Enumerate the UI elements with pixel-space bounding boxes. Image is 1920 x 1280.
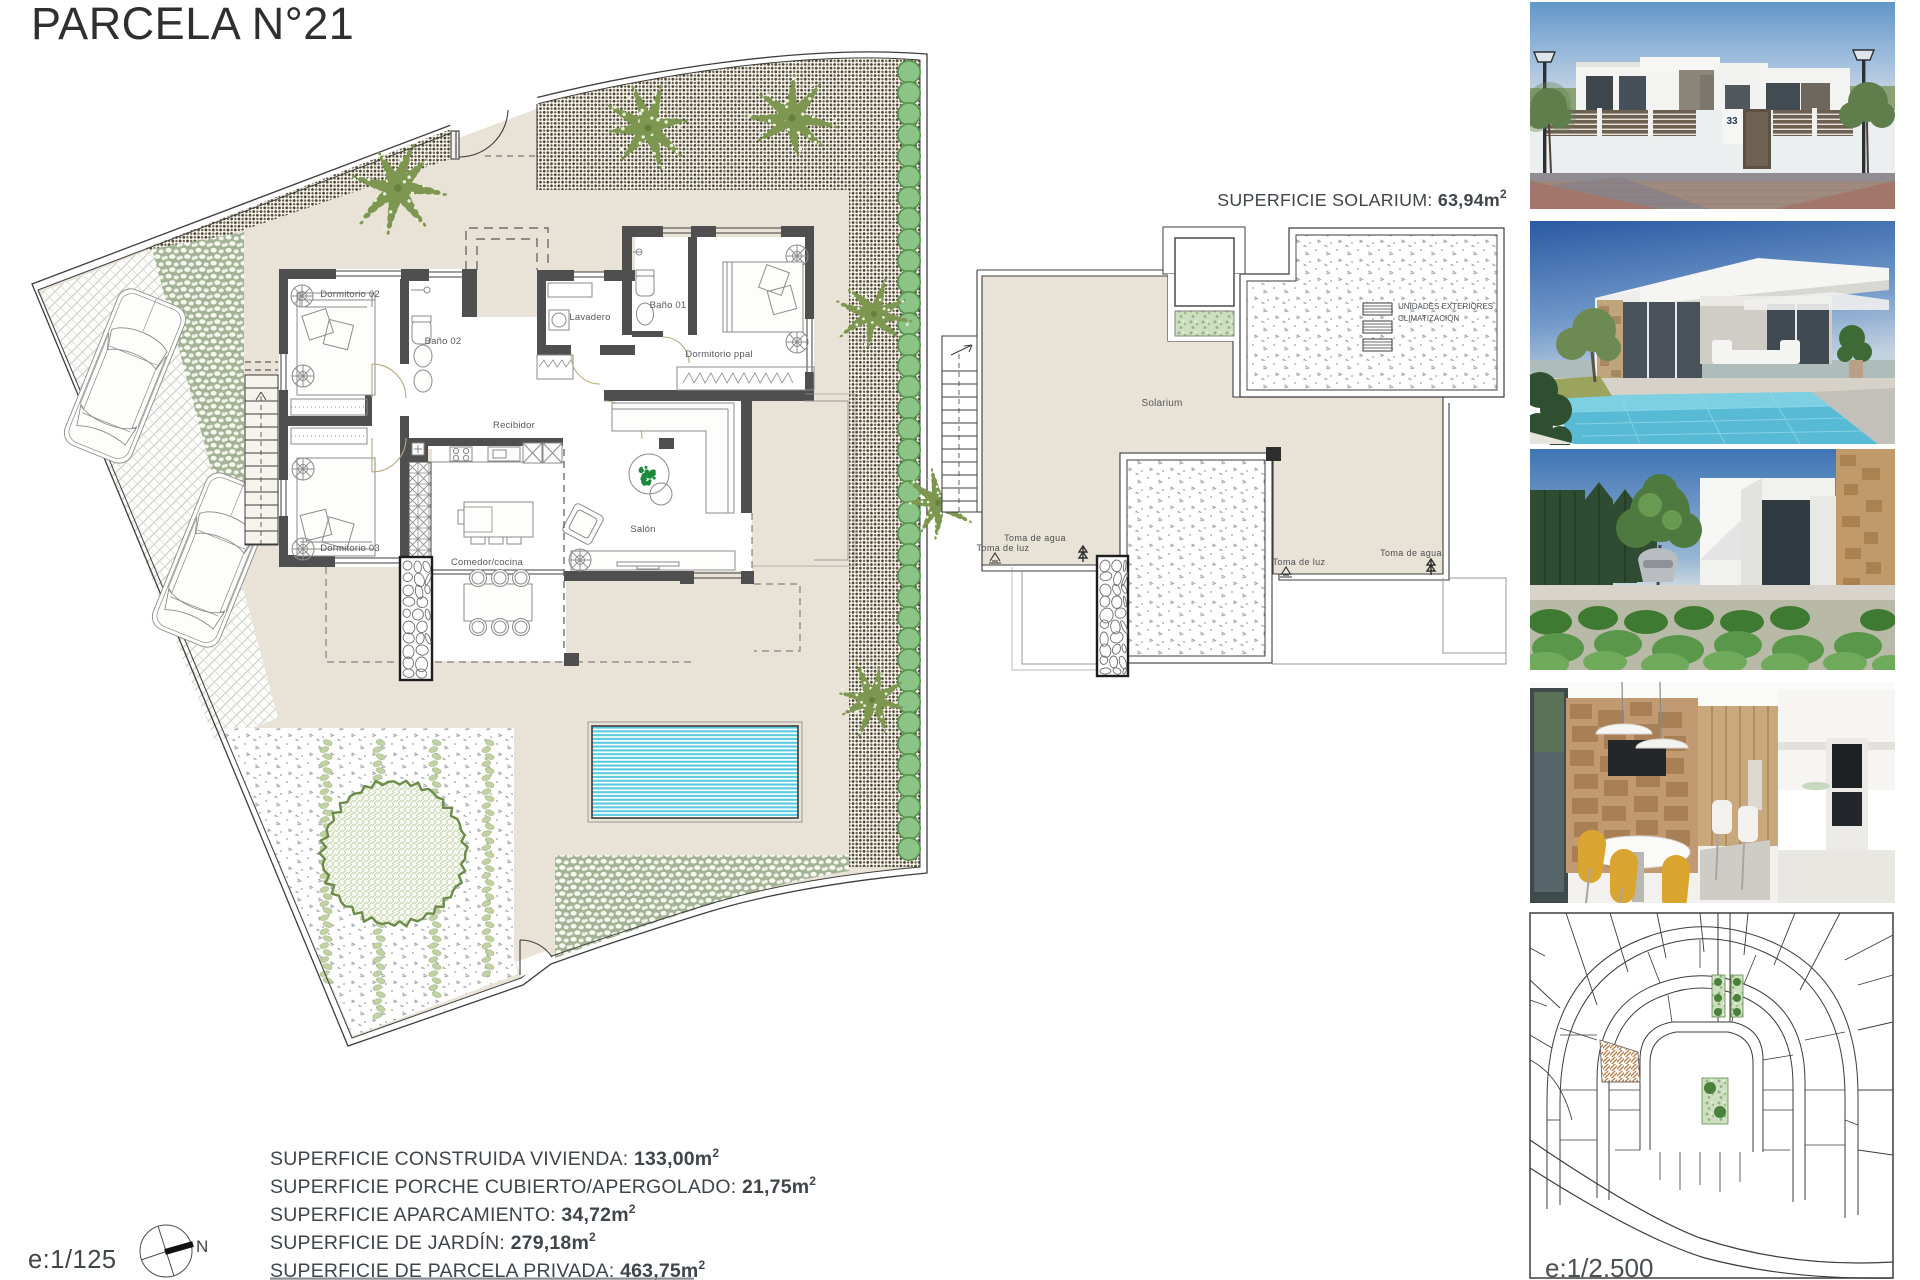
svg-text:Toma de agua: Toma de agua bbox=[1004, 533, 1066, 543]
svg-text:Baño 02: Baño 02 bbox=[425, 336, 462, 347]
svg-text:SUPERFICIE DE JARDÍN: 279,18m2: SUPERFICIE DE JARDÍN: 279,18m2 bbox=[270, 1230, 596, 1254]
svg-text:e:1/2.500: e:1/2.500 bbox=[1545, 1253, 1653, 1280]
svg-text:Dormitorio 02: Dormitorio 02 bbox=[320, 289, 380, 300]
svg-text:Lavadero: Lavadero bbox=[569, 312, 610, 323]
svg-text:Baño 01: Baño 01 bbox=[650, 300, 687, 311]
svg-text:PARCELA N°21: PARCELA N°21 bbox=[31, 0, 354, 49]
svg-text:Toma de luz: Toma de luz bbox=[1273, 557, 1326, 567]
svg-text:Salón: Salón bbox=[630, 524, 655, 535]
svg-text:SUPERFICIE APARCAMIENTO: 34,72: SUPERFICIE APARCAMIENTO: 34,72m2 bbox=[270, 1202, 636, 1226]
svg-text:CLIMATIZACIÓN: CLIMATIZACIÓN bbox=[1398, 314, 1459, 323]
svg-text:33: 33 bbox=[1726, 116, 1738, 127]
svg-text:N: N bbox=[196, 1237, 208, 1256]
svg-text:UNIDADES EXTERIORES: UNIDADES EXTERIORES bbox=[1398, 302, 1493, 311]
svg-text:Toma de agua: Toma de agua bbox=[1380, 548, 1442, 558]
svg-text:SUPERFICIE DE PARCELA PRIVADA:: SUPERFICIE DE PARCELA PRIVADA: 463,75m2 bbox=[270, 1258, 705, 1280]
svg-text:Toma de luz: Toma de luz bbox=[977, 543, 1030, 553]
svg-text:Comedor/cocina: Comedor/cocina bbox=[451, 557, 523, 568]
svg-text:SUPERFICIE PORCHE CUBIERTO/APE: SUPERFICIE PORCHE CUBIERTO/APERGOLADO: 2… bbox=[270, 1174, 816, 1198]
svg-text:Dormitorio ppal: Dormitorio ppal bbox=[685, 349, 752, 360]
svg-text:Dormitorio 03: Dormitorio 03 bbox=[320, 543, 380, 554]
svg-text:Solarium: Solarium bbox=[1141, 398, 1182, 409]
svg-text:Recibidor: Recibidor bbox=[493, 420, 535, 431]
svg-text:SUPERFICIE SOLARIUM: 63,94m2: SUPERFICIE SOLARIUM: 63,94m2 bbox=[1217, 187, 1507, 210]
svg-text:SUPERFICIE CONSTRUIDA VIVIENDA: SUPERFICIE CONSTRUIDA VIVIENDA: 133,00m2 bbox=[270, 1146, 719, 1170]
svg-text:e:1/125: e:1/125 bbox=[28, 1246, 117, 1274]
